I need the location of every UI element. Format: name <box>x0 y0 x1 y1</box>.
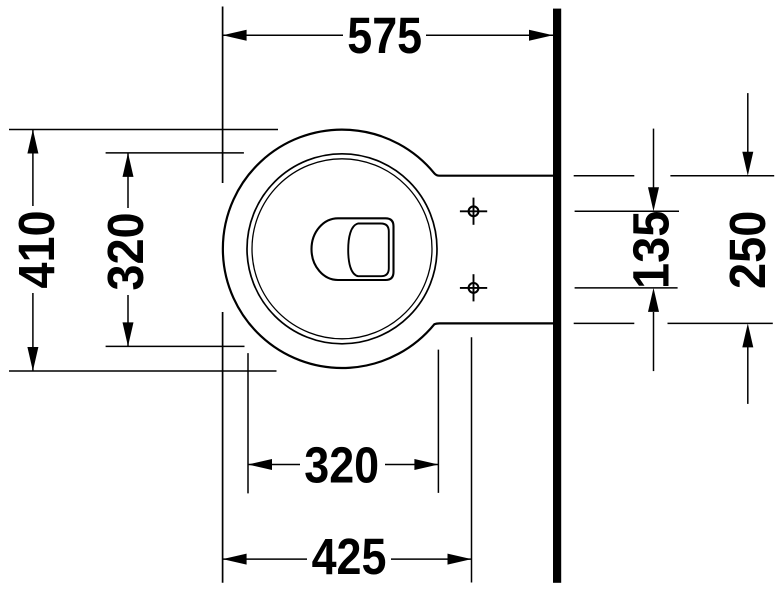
svg-text:250: 250 <box>720 211 776 289</box>
svg-text:320: 320 <box>304 438 379 494</box>
svg-text:320: 320 <box>98 212 154 290</box>
svg-text:425: 425 <box>312 529 387 585</box>
svg-text:410: 410 <box>9 210 65 288</box>
svg-text:575: 575 <box>347 9 422 65</box>
svg-text:135: 135 <box>624 211 680 289</box>
